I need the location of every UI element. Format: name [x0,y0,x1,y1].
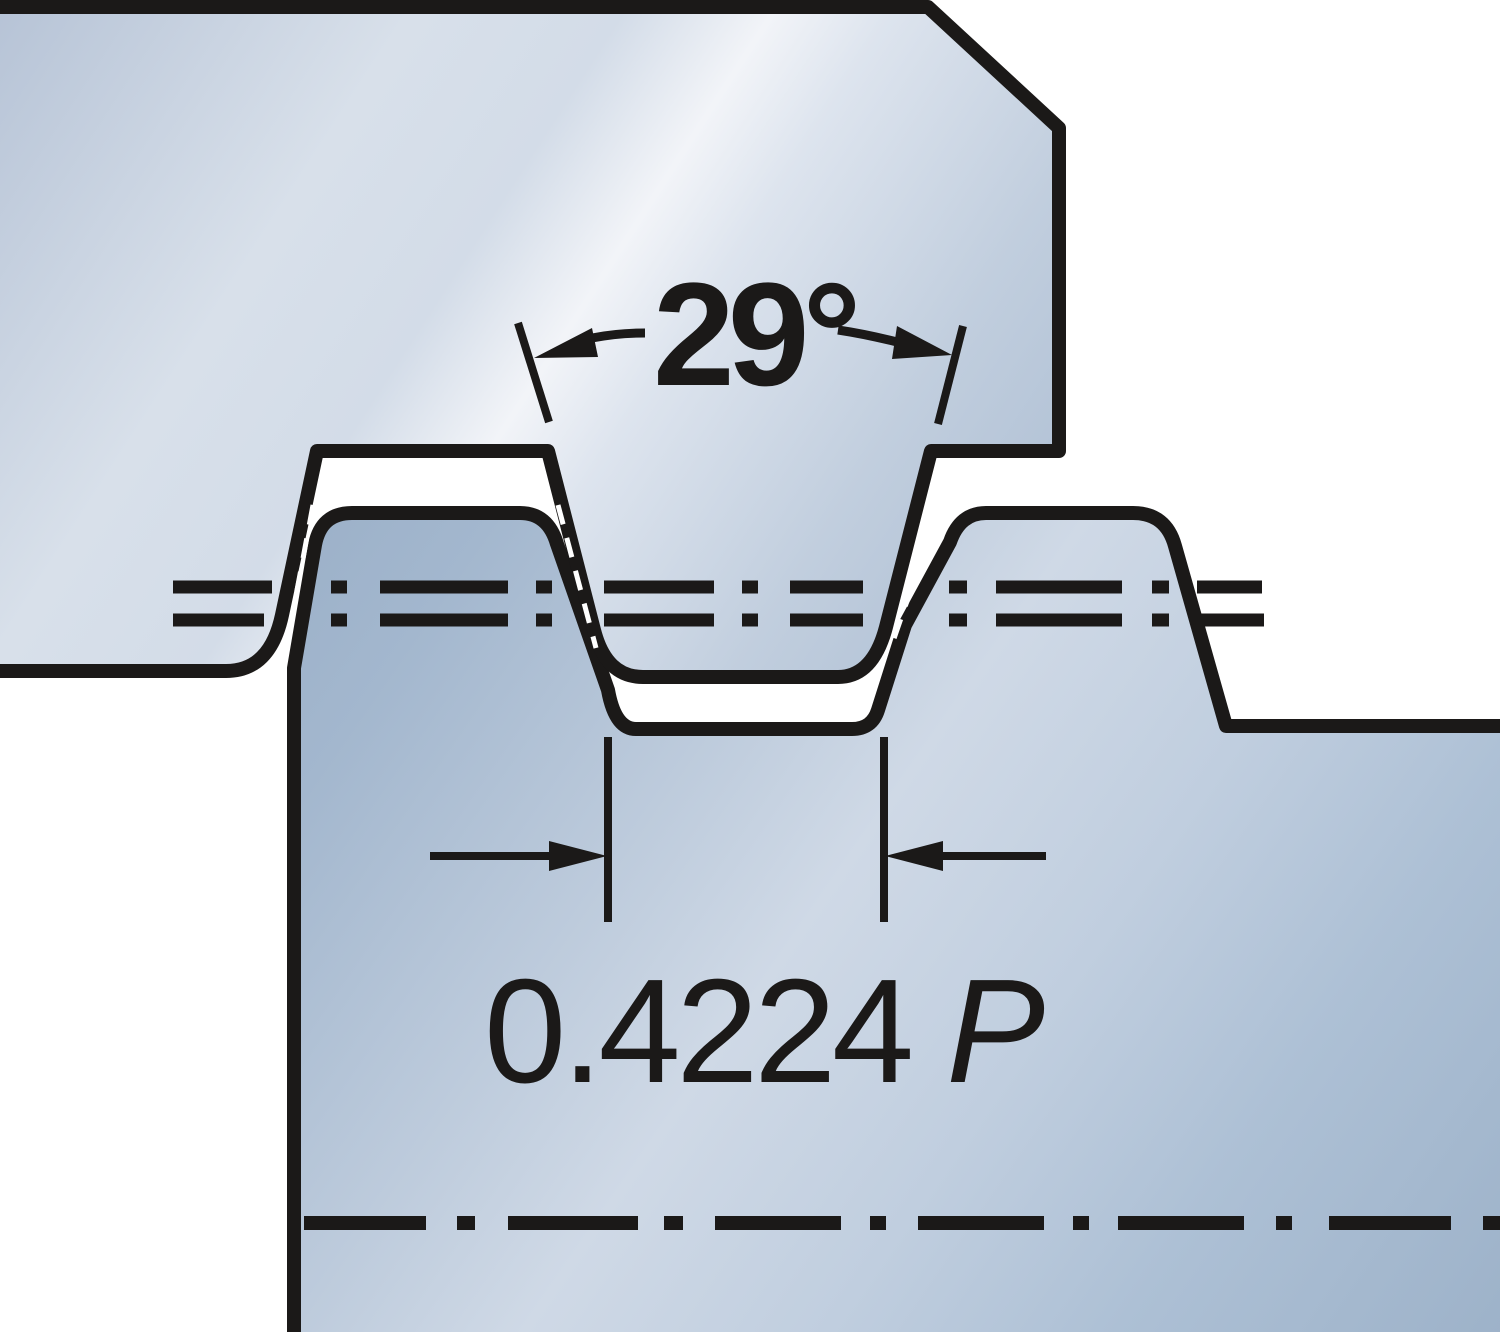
svg-text:0.4224 P: 0.4224 P [484,949,1044,1114]
svg-text:29°: 29° [653,253,856,417]
